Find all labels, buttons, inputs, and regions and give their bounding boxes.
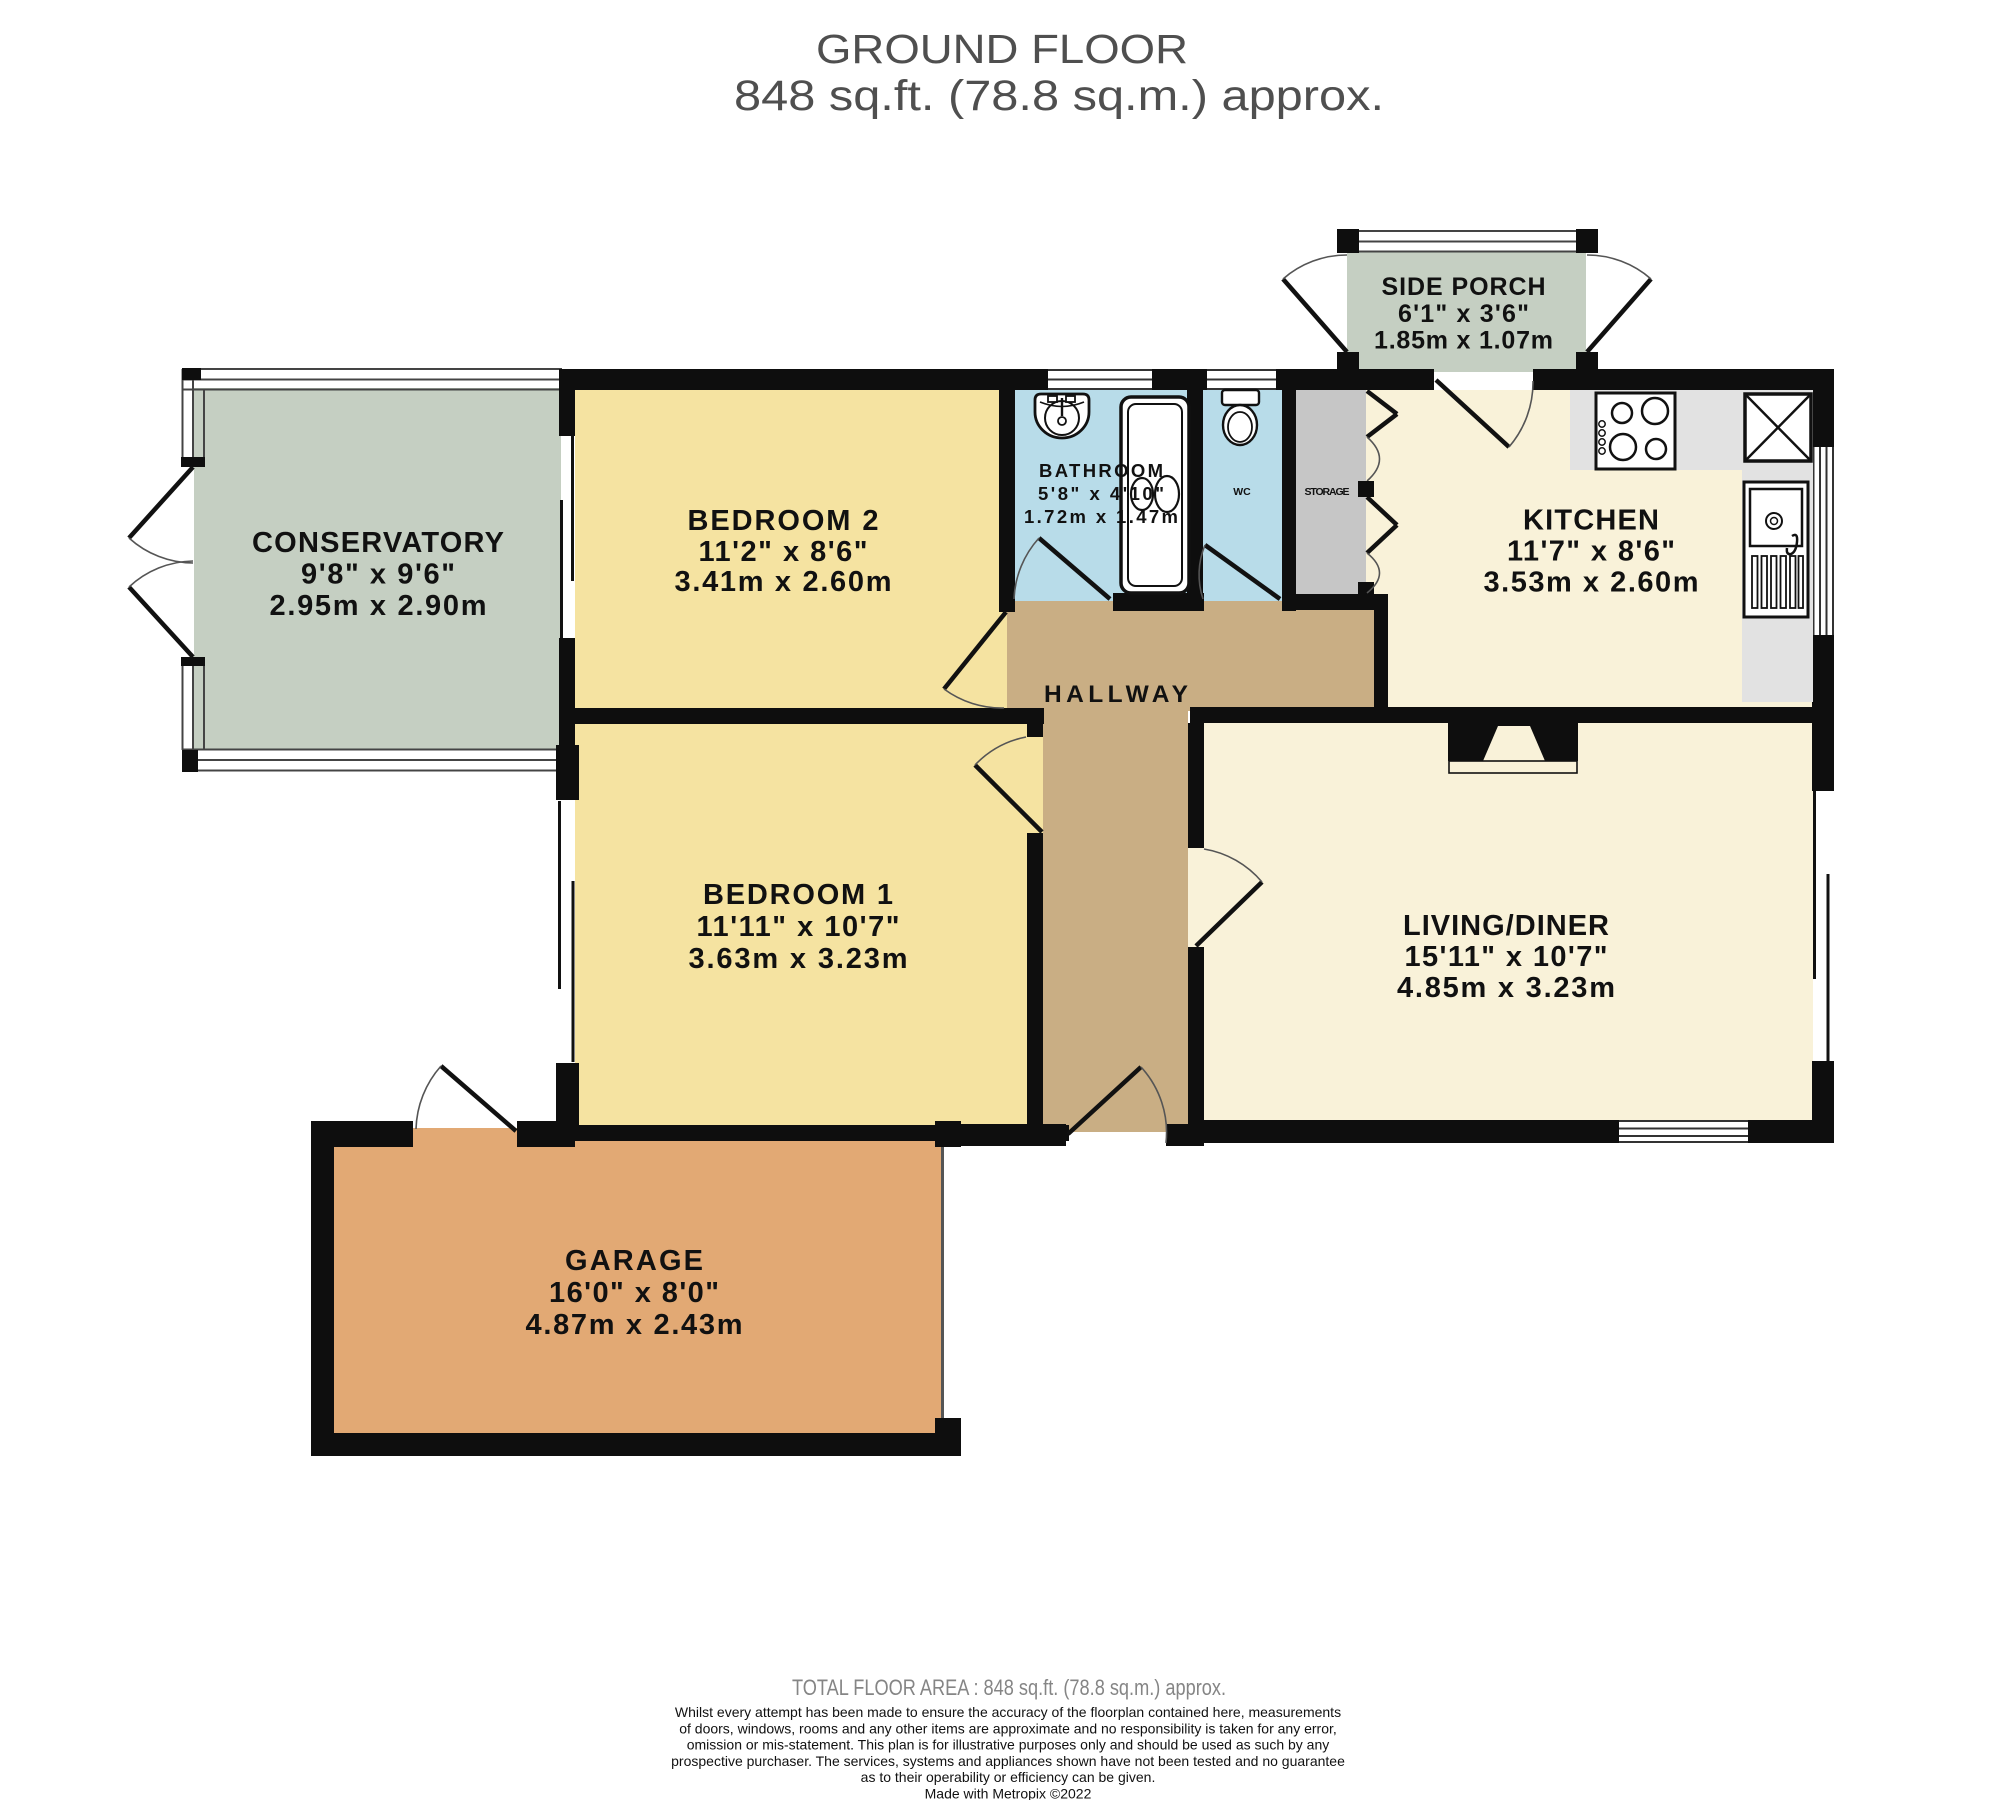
- svg-text:CONSERVATORY: CONSERVATORY: [252, 527, 504, 559]
- svg-text:GROUND FLOOR: GROUND FLOOR: [816, 26, 1188, 72]
- svg-text:2.95m x 2.90m: 2.95m x 2.90m: [270, 590, 487, 622]
- svg-text:prospective purchaser. The ser: prospective purchaser. The services, sys…: [671, 1753, 1345, 1769]
- svg-text:16'0" x 8'0": 16'0" x 8'0": [549, 1277, 719, 1309]
- svg-text:1.85m x 1.07m: 1.85m x 1.07m: [1374, 327, 1553, 355]
- svg-text:of doors, windows, rooms and a: of doors, windows, rooms and any other i…: [679, 1720, 1337, 1736]
- svg-text:HALLWAY: HALLWAY: [1044, 681, 1188, 708]
- svg-text:4.87m x 2.43m: 4.87m x 2.43m: [526, 1309, 743, 1341]
- svg-text:KITCHEN: KITCHEN: [1523, 505, 1659, 537]
- svg-text:SIDE PORCH: SIDE PORCH: [1382, 273, 1546, 301]
- svg-text:11'7" x 8'6": 11'7" x 8'6": [1507, 536, 1675, 568]
- svg-text:3.53m x 2.60m: 3.53m x 2.60m: [1484, 567, 1699, 599]
- svg-text:3.63m x 3.23m: 3.63m x 3.23m: [689, 943, 908, 975]
- svg-text:WC: WC: [1233, 486, 1251, 498]
- svg-text:6'1" x 3'6": 6'1" x 3'6": [1398, 300, 1529, 328]
- svg-text:omission or mis-statement. Thi: omission or mis-statement. This plan is …: [687, 1737, 1330, 1753]
- svg-text:Made with Metropix ©2022: Made with Metropix ©2022: [925, 1786, 1092, 1800]
- svg-text:STORAGE: STORAGE: [1305, 486, 1350, 498]
- svg-text:LIVING/DINER: LIVING/DINER: [1403, 910, 1609, 942]
- svg-text:9'8" x 9'6": 9'8" x 9'6": [301, 559, 455, 591]
- svg-text:TOTAL FLOOR AREA : 848 sq.ft.: TOTAL FLOOR AREA : 848 sq.ft. (78.8 sq.m…: [792, 1675, 1226, 1700]
- svg-text:15'11" x 10'7": 15'11" x 10'7": [1405, 941, 1608, 973]
- svg-text:BATHROOM: BATHROOM: [1039, 460, 1163, 481]
- svg-text:1.72m x 1.47m: 1.72m x 1.47m: [1024, 506, 1178, 527]
- svg-text:as to their operability or eff: as to their operability or efficiency ca…: [861, 1769, 1156, 1785]
- svg-text:11'2" x 8'6": 11'2" x 8'6": [699, 536, 868, 568]
- svg-text:3.41m x 2.60m: 3.41m x 2.60m: [675, 566, 892, 598]
- svg-text:BEDROOM 2: BEDROOM 2: [688, 505, 879, 537]
- svg-text:11'11" x 10'7": 11'11" x 10'7": [697, 911, 900, 943]
- svg-text:4.85m x 3.23m: 4.85m x 3.23m: [1397, 972, 1615, 1004]
- svg-text:Whilst every attempt has been: Whilst every attempt has been made to en…: [675, 1704, 1341, 1720]
- svg-text:BEDROOM 1: BEDROOM 1: [703, 879, 893, 911]
- svg-text:848 sq.ft. (78.8 sq.m.) approx: 848 sq.ft. (78.8 sq.m.) approx.: [734, 72, 1384, 120]
